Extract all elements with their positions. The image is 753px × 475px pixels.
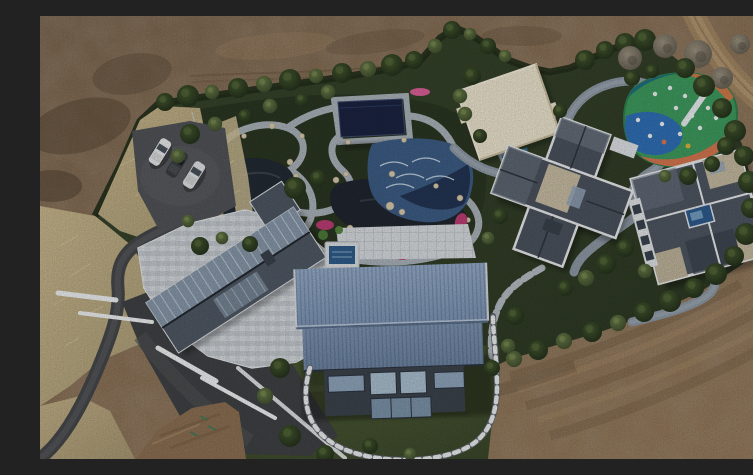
aerial-photo-canvas	[40, 16, 753, 459]
photo-grain-overlay	[40, 16, 753, 459]
aerial-photo	[40, 16, 753, 459]
